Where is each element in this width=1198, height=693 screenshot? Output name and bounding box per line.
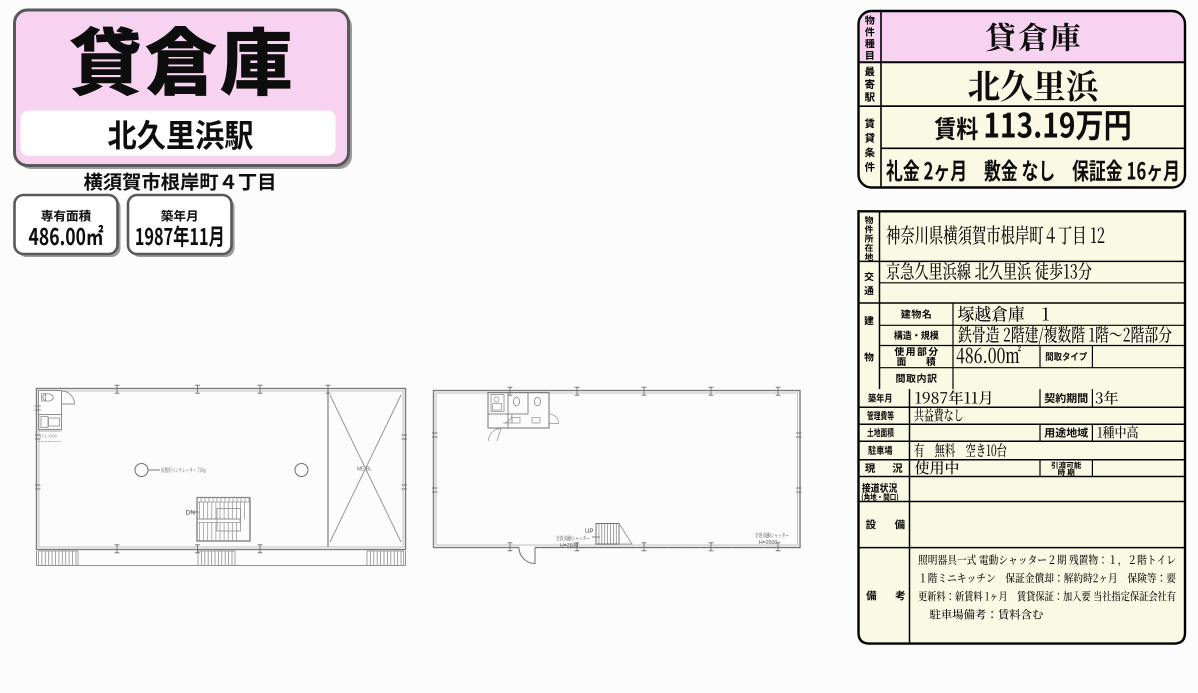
svg-text:H=2600: H=2600 xyxy=(560,543,578,549)
svg-text:DN: DN xyxy=(186,510,196,517)
svg-text:1FL+600: 1FL+600 xyxy=(40,434,58,439)
svg-text:H=2600: H=2600 xyxy=(759,540,777,546)
svg-text:ME BL: ME BL xyxy=(357,467,372,473)
svg-text:UP: UP xyxy=(585,529,593,535)
